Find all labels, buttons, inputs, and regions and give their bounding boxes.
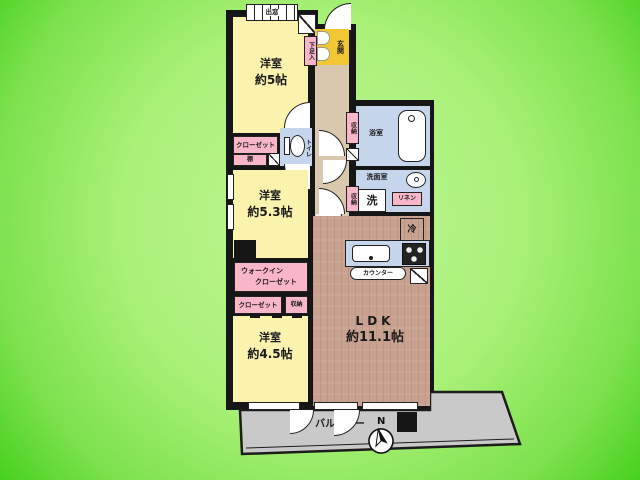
storage-c-label: 収納 (285, 296, 308, 314)
walkin-closet-label-line2: クローゼット (241, 277, 307, 288)
south-window-3 (362, 402, 418, 410)
south-window-2 (314, 402, 358, 410)
room-western53-label: 洋室 約5.3帖 (237, 184, 303, 226)
closet-b-label: クローゼット (234, 296, 282, 314)
bay-window-label: 出窓 (264, 9, 281, 16)
ldk-label: LDK 約11.1帖 (330, 306, 420, 354)
linen-label: リネン (392, 192, 422, 206)
corridor-hatch (346, 148, 359, 161)
walkin-closet-floor: ウォークイン クローゼット (234, 262, 308, 292)
west-window-2 (227, 204, 234, 230)
balcony-pillar (397, 412, 417, 432)
bathtub-icon (398, 110, 426, 162)
washer-label: 洗 (367, 195, 378, 206)
fridge-space: 冷 (400, 218, 424, 242)
room-western5-label: 洋室 約5帖 (238, 52, 304, 94)
kitchen-side-hatch (410, 268, 428, 284)
pipe-space-hatch-top (298, 14, 316, 34)
storage-a-label: 収納 (346, 112, 359, 144)
kitchen-faucet-icon (369, 256, 373, 260)
washbasin-icon (406, 172, 426, 188)
closet-door-tick-1 (250, 313, 260, 318)
washbasin-drain-icon (414, 177, 419, 182)
bath-label: 浴室 (362, 128, 390, 139)
kitchen-counter-top (345, 240, 430, 267)
walkin-closet-label-line1: ウォークイン (241, 266, 307, 277)
structural-column (234, 240, 256, 258)
counter-label: カウンター (363, 271, 393, 277)
south-window-1 (248, 402, 300, 410)
washing-machine-icon: 洗 (358, 189, 386, 212)
washroom-label: 洗面室 (360, 172, 394, 182)
stove-icon (402, 243, 426, 265)
bathtub-faucet-icon (408, 115, 415, 122)
entrance-label: 玄関 (334, 32, 346, 62)
closet-a-label: クローゼット (233, 136, 278, 154)
closet-door-tick-3 (292, 313, 302, 318)
floor-plan-canvas: N バルコニー 洋室 約5帖 出窓 玄関 下足入 クローゼット 棚 トイレ (0, 0, 640, 480)
fridge-label: 冷 (407, 226, 416, 235)
shoe-box-label: 下足入 (304, 36, 317, 66)
west-window-1 (227, 174, 234, 200)
shelf-label: 棚 (233, 154, 267, 166)
counter-label-chip: カウンター (350, 267, 406, 280)
toilet-label: トイレ (303, 131, 312, 164)
shoe-cabinet-arc-2 (317, 47, 330, 61)
storage-b-label: 収納 (346, 186, 359, 212)
bay-window-icon: 出窓 (246, 4, 298, 21)
closet-door-tick-2 (272, 313, 282, 318)
shelf-side-hatch (268, 153, 280, 166)
shoe-cabinet-arc-1 (317, 31, 330, 45)
room-western45-label: 洋室 約4.5帖 (237, 326, 303, 368)
kitchen-sink-icon (352, 245, 390, 262)
